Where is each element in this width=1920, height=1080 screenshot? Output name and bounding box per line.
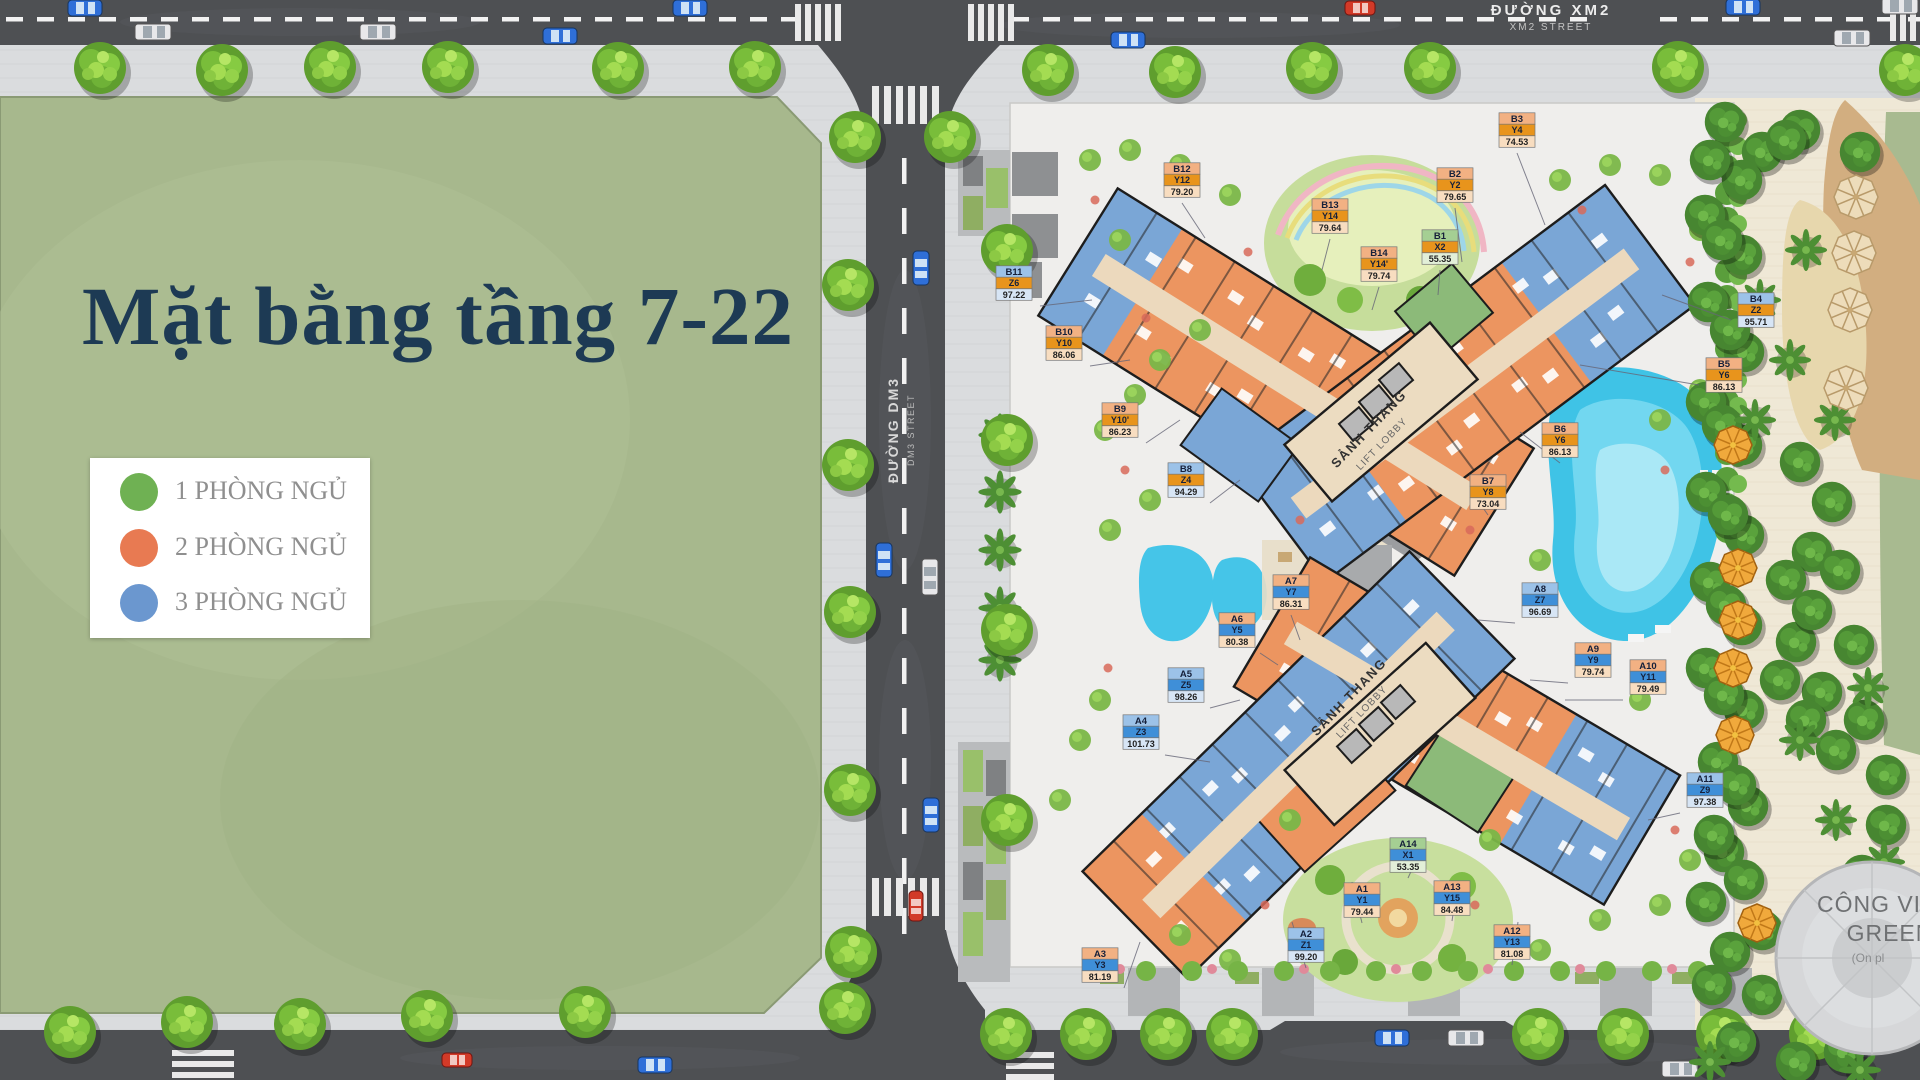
- svg-text:Y10': Y10': [1111, 415, 1129, 425]
- svg-text:Z9: Z9: [1700, 785, 1711, 795]
- svg-text:86.31: 86.31: [1280, 599, 1303, 609]
- svg-text:A4: A4: [1135, 716, 1148, 727]
- svg-text:A7: A7: [1285, 576, 1297, 587]
- svg-text:A2: A2: [1300, 929, 1312, 940]
- svg-text:Y8: Y8: [1482, 487, 1493, 497]
- svg-text:79.20: 79.20: [1171, 187, 1194, 197]
- svg-text:86.23: 86.23: [1109, 427, 1132, 437]
- svg-text:Y4: Y4: [1511, 125, 1522, 135]
- svg-text:79.64: 79.64: [1319, 223, 1342, 233]
- svg-text:Z5: Z5: [1181, 680, 1192, 690]
- svg-text:95.71: 95.71: [1745, 317, 1768, 327]
- svg-text:73.04: 73.04: [1477, 499, 1500, 509]
- svg-text:Y6: Y6: [1718, 370, 1729, 380]
- svg-text:A11: A11: [1697, 774, 1715, 785]
- svg-text:86.13: 86.13: [1549, 447, 1572, 457]
- svg-text:84.48: 84.48: [1441, 905, 1464, 915]
- svg-text:B12: B12: [1173, 164, 1190, 175]
- svg-text:101.73: 101.73: [1127, 739, 1155, 749]
- svg-text:B9: B9: [1114, 404, 1126, 415]
- svg-text:Y5: Y5: [1231, 625, 1242, 635]
- svg-text:79.74: 79.74: [1582, 667, 1605, 677]
- svg-text:53.35: 53.35: [1397, 862, 1420, 872]
- svg-text:A14: A14: [1399, 839, 1417, 850]
- svg-text:Y14: Y14: [1322, 211, 1338, 221]
- svg-text:Y12: Y12: [1174, 175, 1190, 185]
- svg-text:Z2: Z2: [1751, 305, 1762, 315]
- svg-text:(On pl: (On pl: [1852, 951, 1885, 965]
- svg-text:86.06: 86.06: [1053, 350, 1076, 360]
- svg-text:79.65: 79.65: [1444, 192, 1467, 202]
- svg-text:B7: B7: [1482, 476, 1494, 487]
- svg-text:ĐƯỜNG DM3: ĐƯỜNG DM3: [884, 377, 901, 483]
- svg-text:A9: A9: [1587, 644, 1599, 655]
- svg-text:B11: B11: [1006, 267, 1024, 278]
- svg-text:B14: B14: [1370, 248, 1388, 259]
- svg-text:CÔNG VIÊN: CÔNG VIÊN: [1817, 890, 1920, 917]
- svg-text:Z1: Z1: [1301, 940, 1312, 950]
- svg-text:A13: A13: [1443, 882, 1460, 893]
- svg-text:Z4: Z4: [1181, 475, 1192, 485]
- svg-text:Z7: Z7: [1535, 595, 1546, 605]
- svg-text:B4: B4: [1750, 294, 1763, 305]
- svg-text:Y14': Y14': [1370, 259, 1388, 269]
- svg-text:GREEN: GREEN: [1847, 920, 1920, 946]
- svg-text:Y7: Y7: [1285, 587, 1296, 597]
- svg-text:A10: A10: [1639, 661, 1656, 672]
- svg-text:X2: X2: [1434, 242, 1445, 252]
- svg-text:A1: A1: [1356, 884, 1369, 895]
- svg-text:A5: A5: [1180, 669, 1193, 680]
- svg-text:97.38: 97.38: [1694, 797, 1717, 807]
- svg-text:B3: B3: [1511, 114, 1523, 125]
- svg-text:86.13: 86.13: [1713, 382, 1736, 392]
- svg-text:Y3: Y3: [1094, 960, 1105, 970]
- svg-text:55.35: 55.35: [1429, 254, 1452, 264]
- svg-text:B8: B8: [1180, 464, 1192, 475]
- svg-text:ĐƯỜNG XM2: ĐƯỜNG XM2: [1491, 1, 1612, 19]
- svg-text:Y13: Y13: [1504, 937, 1520, 947]
- svg-text:A3: A3: [1094, 949, 1106, 960]
- svg-text:DM3 STREET: DM3 STREET: [906, 394, 916, 466]
- svg-text:74.53: 74.53: [1506, 137, 1529, 147]
- svg-text:99.20: 99.20: [1295, 952, 1318, 962]
- svg-text:Y9: Y9: [1587, 655, 1598, 665]
- svg-text:X1: X1: [1402, 850, 1413, 860]
- svg-text:B13: B13: [1321, 200, 1338, 211]
- svg-text:B1: B1: [1434, 231, 1447, 242]
- svg-text:80.38: 80.38: [1226, 637, 1249, 647]
- svg-text:81.08: 81.08: [1501, 949, 1524, 959]
- svg-text:A6: A6: [1231, 614, 1243, 625]
- svg-text:Y2: Y2: [1449, 180, 1460, 190]
- svg-text:79.74: 79.74: [1368, 271, 1391, 281]
- svg-text:96.69: 96.69: [1529, 607, 1552, 617]
- svg-text:A12: A12: [1503, 926, 1520, 937]
- svg-text:B10: B10: [1055, 327, 1072, 338]
- svg-text:XM2 STREET: XM2 STREET: [1510, 22, 1593, 33]
- svg-text:81.19: 81.19: [1089, 972, 1112, 982]
- svg-text:B6: B6: [1554, 424, 1566, 435]
- svg-text:Y6: Y6: [1554, 435, 1565, 445]
- svg-text:98.26: 98.26: [1175, 692, 1198, 702]
- svg-text:B2: B2: [1449, 169, 1461, 180]
- svg-text:B5: B5: [1718, 359, 1731, 370]
- svg-text:Z3: Z3: [1136, 727, 1147, 737]
- svg-text:97.22: 97.22: [1003, 290, 1026, 300]
- svg-text:Z6: Z6: [1009, 278, 1020, 288]
- svg-text:Y1: Y1: [1356, 895, 1367, 905]
- svg-text:Y10: Y10: [1056, 338, 1072, 348]
- svg-text:79.49: 79.49: [1637, 684, 1660, 694]
- svg-text:Y11: Y11: [1640, 672, 1656, 682]
- svg-text:A8: A8: [1534, 584, 1546, 595]
- svg-text:94.29: 94.29: [1175, 487, 1198, 497]
- svg-text:Y15: Y15: [1444, 893, 1460, 903]
- svg-text:79.44: 79.44: [1351, 907, 1374, 917]
